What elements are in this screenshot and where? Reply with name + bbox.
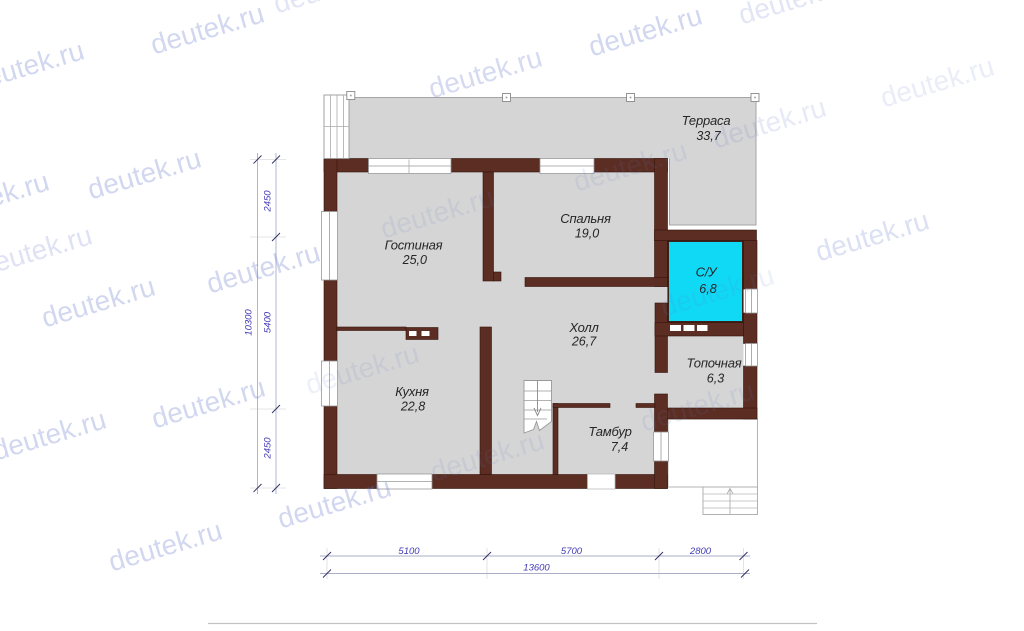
svg-text:13600: 13600: [523, 563, 550, 574]
svg-text:25,0: 25,0: [402, 253, 427, 267]
svg-text:5100: 5100: [398, 546, 420, 557]
svg-text:2450: 2450: [263, 190, 274, 213]
svg-text:Топочная: Топочная: [687, 356, 742, 371]
svg-text:22,8: 22,8: [400, 400, 425, 414]
svg-text:5400: 5400: [263, 311, 274, 333]
svg-text:2450: 2450: [263, 437, 274, 460]
svg-text:Тамбур: Тамбур: [588, 424, 631, 439]
svg-text:Холл: Холл: [568, 320, 599, 335]
svg-text:2800: 2800: [689, 546, 712, 557]
svg-text:Кухня: Кухня: [395, 384, 429, 399]
svg-text:19,0: 19,0: [575, 226, 599, 240]
svg-text:7,4: 7,4: [611, 440, 628, 454]
svg-text:5700: 5700: [561, 546, 583, 557]
svg-text:10300: 10300: [244, 309, 255, 336]
svg-text:Спальня: Спальня: [560, 211, 611, 226]
svg-text:26,7: 26,7: [571, 335, 597, 349]
